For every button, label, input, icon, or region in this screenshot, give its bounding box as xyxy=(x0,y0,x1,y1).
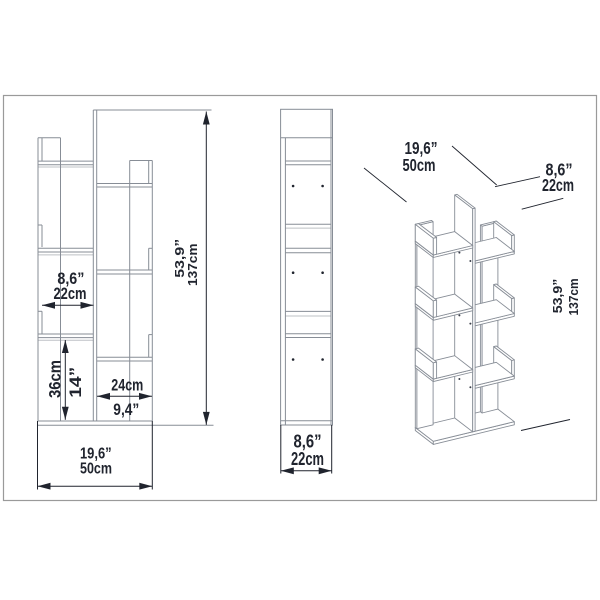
svg-text:53,9”: 53,9” xyxy=(550,279,565,314)
svg-text:14”: 14” xyxy=(66,367,85,398)
svg-text:137cm: 137cm xyxy=(566,278,581,315)
svg-text:22cm: 22cm xyxy=(54,284,87,303)
svg-text:137cm: 137cm xyxy=(185,243,200,286)
svg-text:22cm: 22cm xyxy=(542,175,574,195)
svg-text:9,4”: 9,4” xyxy=(113,400,139,419)
svg-text:50cm: 50cm xyxy=(80,460,112,477)
svg-text:24cm: 24cm xyxy=(111,376,143,395)
svg-text:36cm: 36cm xyxy=(45,360,64,398)
svg-text:50cm: 50cm xyxy=(403,155,436,175)
svg-text:22cm: 22cm xyxy=(291,449,324,469)
